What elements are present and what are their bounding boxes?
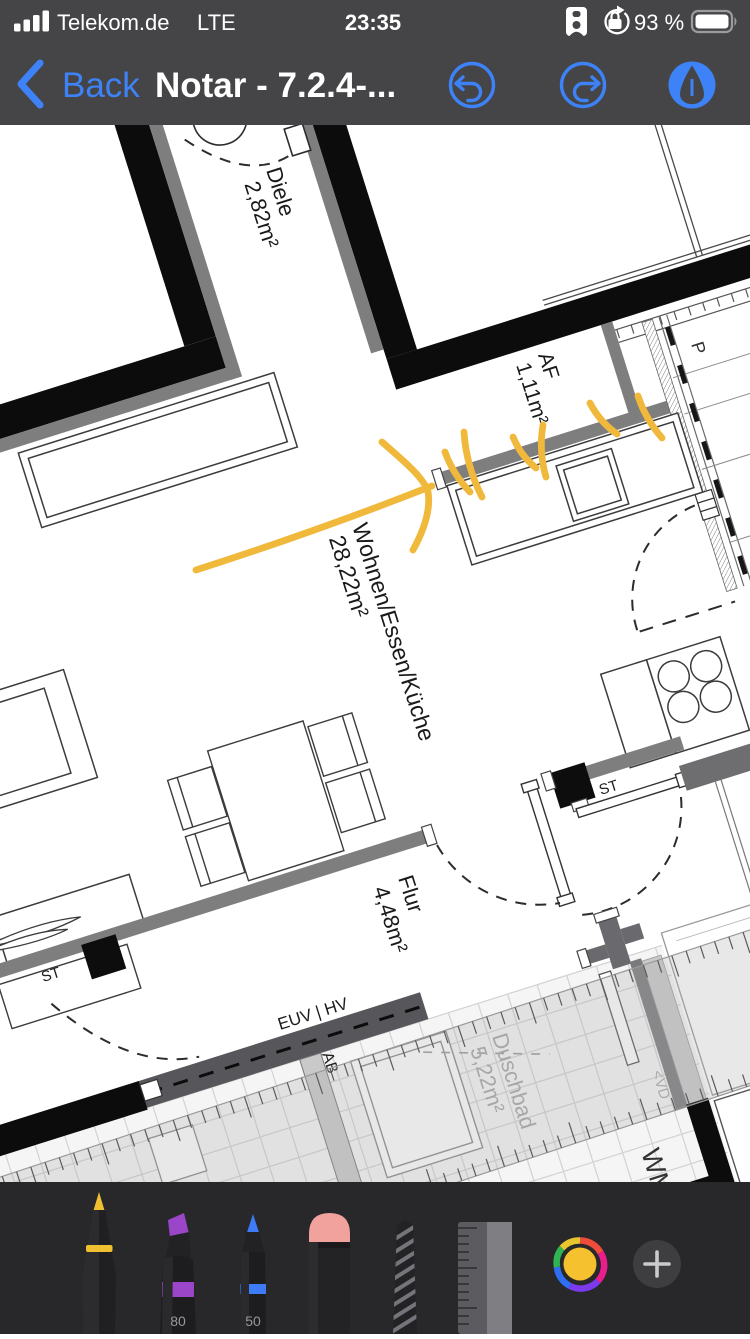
svg-text:80: 80 — [170, 1313, 186, 1329]
svg-text:LTE: LTE — [197, 10, 236, 35]
svg-text:Telekom.de: Telekom.de — [57, 10, 170, 35]
svg-text:23:35: 23:35 — [345, 10, 401, 35]
svg-text:P: P — [687, 339, 710, 356]
svg-text:Back: Back — [62, 66, 140, 105]
svg-text:Wohnen/Essen/Küche: Wohnen/Essen/Küche — [347, 520, 440, 744]
svg-text:Notar - 7.2.4-...: Notar - 7.2.4-... — [155, 66, 396, 105]
svg-text:93 %: 93 % — [634, 10, 684, 35]
svg-text:50: 50 — [245, 1313, 261, 1329]
